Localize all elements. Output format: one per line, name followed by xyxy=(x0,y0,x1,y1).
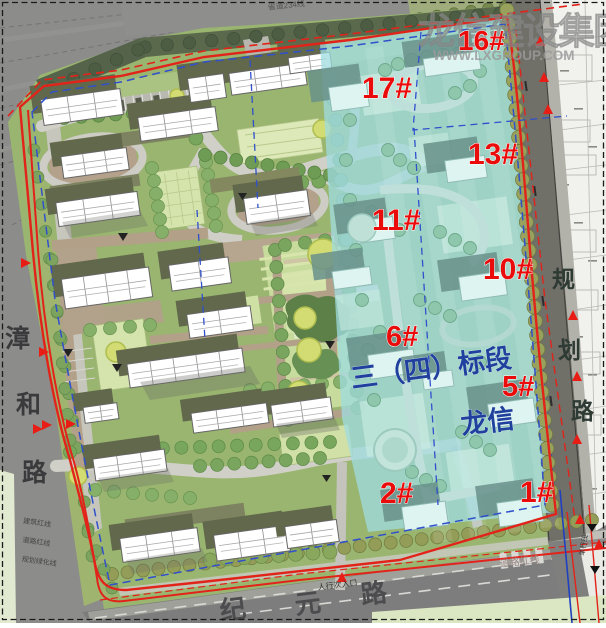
svg-text:路: 路 xyxy=(571,398,595,424)
svg-text:10#: 10# xyxy=(483,253,533,286)
svg-text:路: 路 xyxy=(359,577,389,610)
svg-text:1#: 1# xyxy=(520,476,554,509)
svg-text:龙信建设集团: 龙信建设集团 xyxy=(418,11,606,52)
svg-text:规: 规 xyxy=(552,266,575,292)
svg-text:2#: 2# xyxy=(380,477,414,510)
svg-text:16#: 16# xyxy=(458,25,505,56)
svg-text:和: 和 xyxy=(16,391,41,419)
svg-text:漳: 漳 xyxy=(5,324,30,353)
svg-text:13#: 13# xyxy=(468,138,518,171)
svg-text:路: 路 xyxy=(22,459,48,487)
svg-text:17#: 17# xyxy=(362,72,412,105)
svg-text:11#: 11# xyxy=(372,204,421,237)
svg-text:5#: 5# xyxy=(502,371,534,403)
svg-text:6#: 6# xyxy=(386,321,418,353)
svg-text:划: 划 xyxy=(558,337,581,363)
svg-text:纪: 纪 xyxy=(218,593,247,623)
